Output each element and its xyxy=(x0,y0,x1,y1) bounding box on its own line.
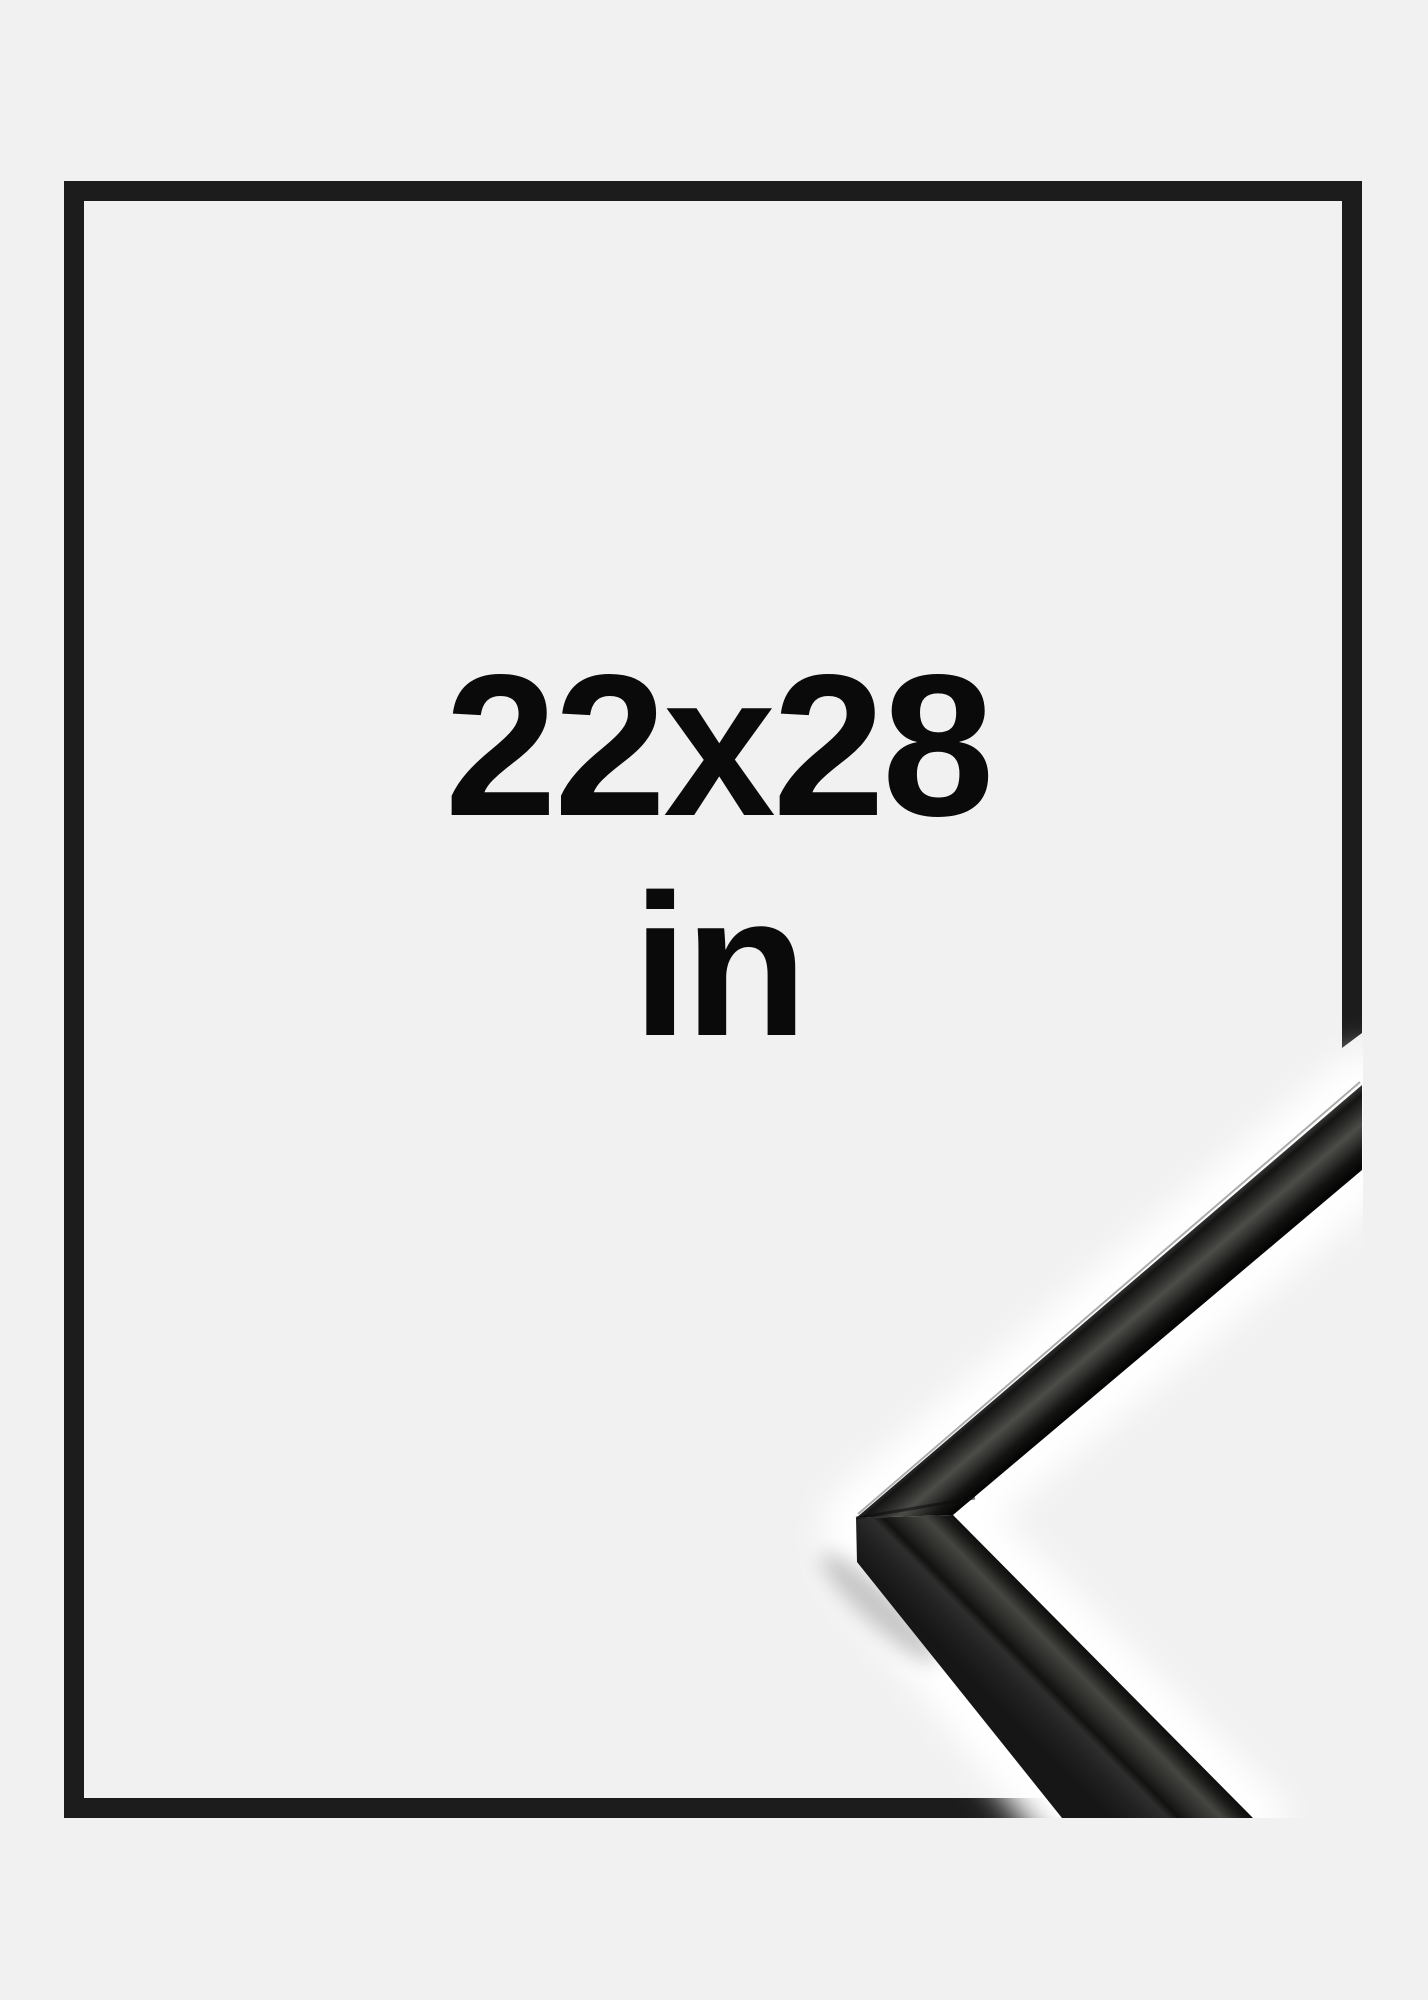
size-value: 22x28 xyxy=(445,635,992,855)
frame-outline-right xyxy=(1342,181,1362,1048)
profile-edge-highlight xyxy=(858,1082,1360,1514)
frame-outline-left xyxy=(64,181,84,1818)
frame-profile-corner-image xyxy=(811,1082,1362,1818)
size-unit: in xyxy=(445,855,992,1075)
frame-outline-bottom xyxy=(64,1798,1062,1818)
product-image-canvas: 22x28 in xyxy=(0,0,1428,2000)
frame-outline-top xyxy=(64,181,1362,201)
size-label: 22x28 in xyxy=(445,635,992,1075)
